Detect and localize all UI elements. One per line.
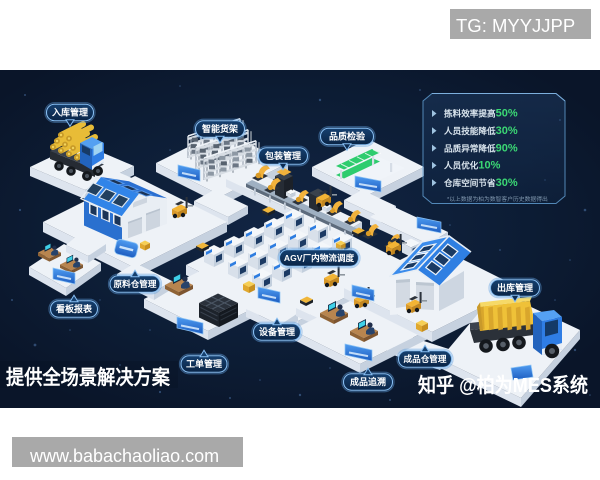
svg-text:智能货架: 智能货架 bbox=[202, 123, 238, 134]
svg-text:设备管理: 设备管理 bbox=[259, 326, 295, 337]
svg-text:入库管理: 入库管理 bbox=[51, 107, 88, 118]
svg-text:提供全场景解决方案: 提供全场景解决方案 bbox=[6, 365, 171, 389]
svg-text:*以上数据为柏为数智客户历史数据得出: *以上数据为柏为数智客户历史数据得出 bbox=[447, 195, 548, 203]
svg-text:AGV厂内物流调度: AGV厂内物流调度 bbox=[284, 252, 355, 263]
svg-text:www.babachaoliao.com: www.babachaoliao.com bbox=[29, 446, 219, 466]
svg-text:成品追溯: 成品追溯 bbox=[350, 376, 386, 387]
svg-text:看板报表: 看板报表 bbox=[56, 303, 93, 314]
svg-text:TG: MYYJJPP: TG: MYYJJPP bbox=[456, 15, 575, 36]
svg-text:工单管理: 工单管理 bbox=[186, 358, 222, 369]
svg-text:人员优化10%: 人员优化10% bbox=[444, 160, 501, 172]
svg-text:人员技能降低30%: 人员技能降低30% bbox=[444, 125, 518, 137]
svg-text:品质检验: 品质检验 bbox=[329, 131, 366, 142]
svg-text:拣料效率提高50%: 拣料效率提高50% bbox=[444, 108, 518, 120]
svg-text:仓库空间节省30%: 仓库空间节省30% bbox=[443, 177, 518, 189]
svg-text:知乎 @柏为MES系统: 知乎 @柏为MES系统 bbox=[418, 373, 588, 397]
svg-text:出库管理: 出库管理 bbox=[497, 282, 533, 293]
svg-text:成品仓管理: 成品仓管理 bbox=[404, 353, 447, 364]
svg-text:包装管理: 包装管理 bbox=[264, 150, 301, 161]
svg-text:品质异常降低90%: 品质异常降低90% bbox=[444, 142, 518, 154]
svg-text:原料仓管理: 原料仓管理 bbox=[114, 278, 157, 289]
